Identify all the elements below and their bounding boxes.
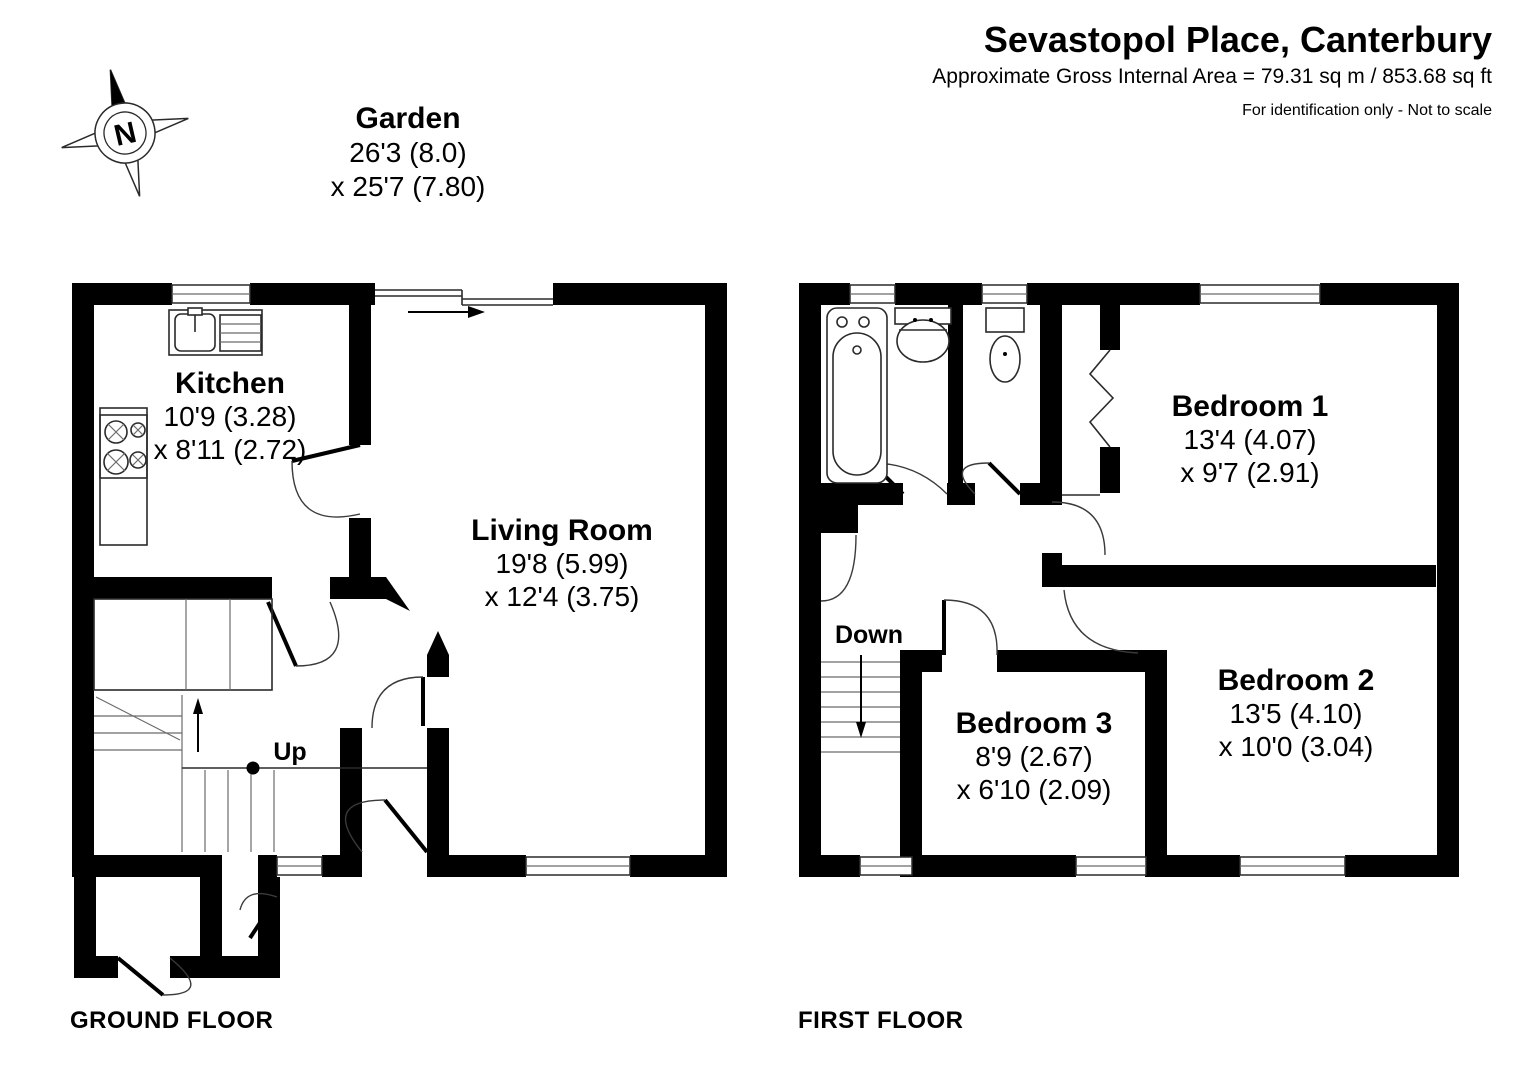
room-dim-2: x 6'10 (2.09) [957, 774, 1112, 805]
window [172, 285, 250, 303]
stairs-down-label: Down [835, 621, 903, 649]
window [1200, 285, 1320, 303]
window [982, 285, 1027, 303]
room-dim-1: 19'8 (5.99) [496, 548, 629, 579]
window [277, 857, 322, 875]
room-dim-2: x 10'0 (3.04) [1219, 731, 1374, 762]
window [526, 857, 630, 875]
ground-floor-plan: Up Kitchen 10'9 (3.28) x 8'11 (2.72 [70, 283, 727, 1034]
entry-arrow-icon [408, 306, 485, 318]
wardrobe-doors-icon [1090, 350, 1113, 447]
room-dim-1: 8'9 (2.67) [975, 741, 1092, 772]
bedroom1-door [1052, 502, 1105, 555]
first-floor-plan: Down Bedroom 1 13'4 (4.07) x 9'7 (2.91) [798, 283, 1459, 1034]
ground-floor-caption: GROUND FLOOR [70, 1007, 273, 1034]
living-room-label: Living Room 19'8 (5.99) x 12'4 (3.75) [471, 514, 653, 612]
page-title: Sevastopol Place, Canterbury [984, 19, 1492, 60]
compass-rose: N [47, 55, 203, 211]
stairs-up: Up [94, 599, 427, 852]
window [1240, 857, 1345, 875]
kitchen-sink-icon [169, 308, 262, 355]
garden-label: Garden 26'3 (8.0) x 25'7 (7.80) [331, 102, 486, 202]
up-arrow-icon [193, 698, 203, 752]
kitchen-label: Kitchen 10'9 (3.28) x 8'11 (2.72) [154, 367, 307, 465]
bedroom1-label: Bedroom 1 13'4 (4.07) x 9'7 (2.91) [1172, 390, 1329, 488]
stair-post-dot [247, 762, 260, 775]
header: Sevastopol Place, Canterbury Approximate… [932, 19, 1492, 119]
room-dim-1: 13'4 (4.07) [1184, 424, 1317, 455]
disclaimer-note: For identification only - Not to scale [1242, 102, 1492, 119]
floorplan-page: Sevastopol Place, Canterbury Approximate… [0, 0, 1526, 1080]
first-floor-caption: FIRST FLOOR [798, 1007, 963, 1034]
toilet-icon [986, 308, 1024, 382]
bedroom2-door [1064, 590, 1138, 653]
garden-name: Garden [355, 102, 460, 135]
window [850, 285, 895, 303]
understairs-cupboard-door [268, 602, 339, 666]
hob-icon [100, 408, 147, 545]
window [860, 857, 912, 875]
stairs-down: Down [821, 621, 903, 752]
room-name: Living Room [471, 514, 653, 547]
stair-cupboard-door [821, 535, 856, 601]
patio-sliding-door [375, 290, 553, 318]
wc-door [962, 463, 1020, 494]
room-dim-2: x 9'7 (2.91) [1180, 457, 1319, 488]
room-name: Bedroom 2 [1218, 664, 1375, 697]
garden-dim-2: x 25'7 (7.80) [331, 171, 486, 202]
room-dim-2: x 8'11 (2.72) [154, 434, 307, 465]
room-name: Kitchen [175, 367, 285, 400]
room-name: Bedroom 3 [956, 707, 1113, 740]
gross-internal-area: Approximate Gross Internal Area = 79.31 … [932, 65, 1492, 88]
basin-icon [895, 308, 951, 362]
first-floor-walls [799, 283, 1459, 877]
room-dim-1: 13'5 (4.10) [1230, 698, 1363, 729]
down-arrow-icon [856, 655, 866, 738]
hall-door [372, 677, 423, 728]
bedroom2-label: Bedroom 2 13'5 (4.10) x 10'0 (3.04) [1218, 664, 1375, 762]
room-dim-1: 10'9 (3.28) [164, 401, 297, 432]
floorplan-canvas: Sevastopol Place, Canterbury Approximate… [0, 0, 1526, 1080]
bathtub-icon [827, 308, 887, 483]
room-name: Bedroom 1 [1172, 390, 1329, 423]
garden-dim-1: 26'3 (8.0) [349, 137, 466, 168]
stairs-up-label: Up [273, 738, 306, 766]
room-dim-2: x 12'4 (3.75) [485, 581, 640, 612]
bedroom3-door [944, 600, 997, 655]
window [1076, 857, 1146, 875]
bedroom3-label: Bedroom 3 8'9 (2.67) x 6'10 (2.09) [956, 707, 1113, 805]
